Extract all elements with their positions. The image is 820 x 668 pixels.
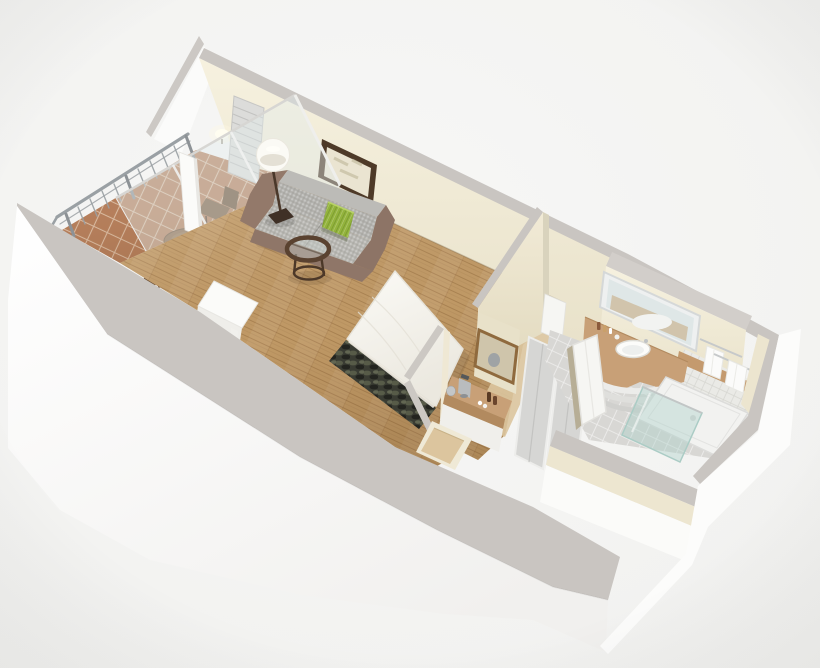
- floorplan-render: [0, 0, 820, 668]
- vignette: [0, 0, 820, 668]
- floorplan-svg: [0, 0, 820, 668]
- floorplan-stage: [0, 0, 820, 668]
